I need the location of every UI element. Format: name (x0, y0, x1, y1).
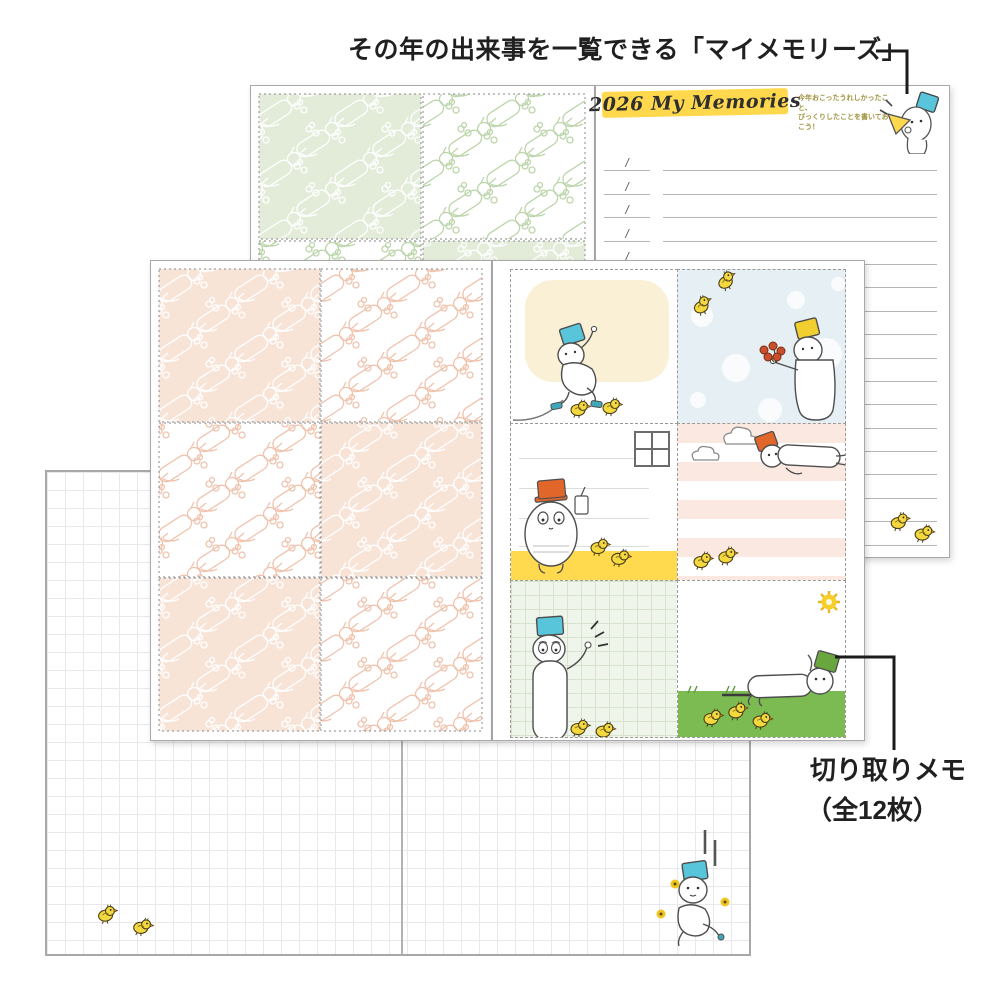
date-slash: / (604, 148, 650, 171)
character-lying-illustration (678, 581, 846, 738)
entry-line (663, 148, 937, 171)
entry-line (663, 195, 937, 218)
character-reading-illustration (511, 424, 678, 581)
memo-note-grid (510, 580, 678, 738)
character-dancing-illustration (645, 824, 753, 950)
cutoff-memo-label-line2: （全12枚） (806, 790, 939, 827)
memo-note-sky-bubbles (677, 269, 846, 424)
cutoff-memo-label-line1: 切り取りメモ (810, 750, 966, 787)
pink-pattern-cells (151, 261, 490, 739)
pink-pattern-page (150, 260, 492, 741)
chick-pair-illustration (884, 506, 948, 548)
entry-line (663, 218, 937, 241)
memories-title-highlight: 2026 My Memories (602, 88, 789, 118)
date-slash: / (604, 195, 650, 218)
entry-line (663, 171, 937, 194)
memories-title: 2026 My Memories (589, 90, 802, 116)
character-jumping-illustration (511, 270, 678, 424)
tearoff-memo-page (492, 260, 865, 741)
memories-entry-row: / (604, 171, 937, 194)
memories-entry-row: / (604, 218, 937, 241)
memo-note-ruled (510, 423, 678, 581)
character-megaphone-illustration (872, 90, 948, 154)
memo-note-cream-blob (510, 269, 678, 424)
product-photo-canvas: 2026 My Memories 今年おこったうれしかったこと、 びっくりしたこ… (0, 0, 1000, 1000)
memo-note-grass (677, 580, 846, 738)
memories-entry-row: / (604, 148, 937, 171)
character-flying-illustration (678, 424, 846, 581)
memo-note-striped (677, 423, 846, 581)
memories-entry-row: / (604, 195, 937, 218)
top-callout-label: その年の出来事を一覧できる「マイメモリーズ」 (348, 30, 907, 66)
date-slash: / (604, 171, 650, 194)
date-slash: / (604, 218, 650, 241)
character-flowers-illustration (678, 270, 846, 424)
chick-pair-illustration (89, 897, 169, 942)
sun-icon (818, 591, 840, 613)
character-waving-illustration (511, 581, 678, 738)
